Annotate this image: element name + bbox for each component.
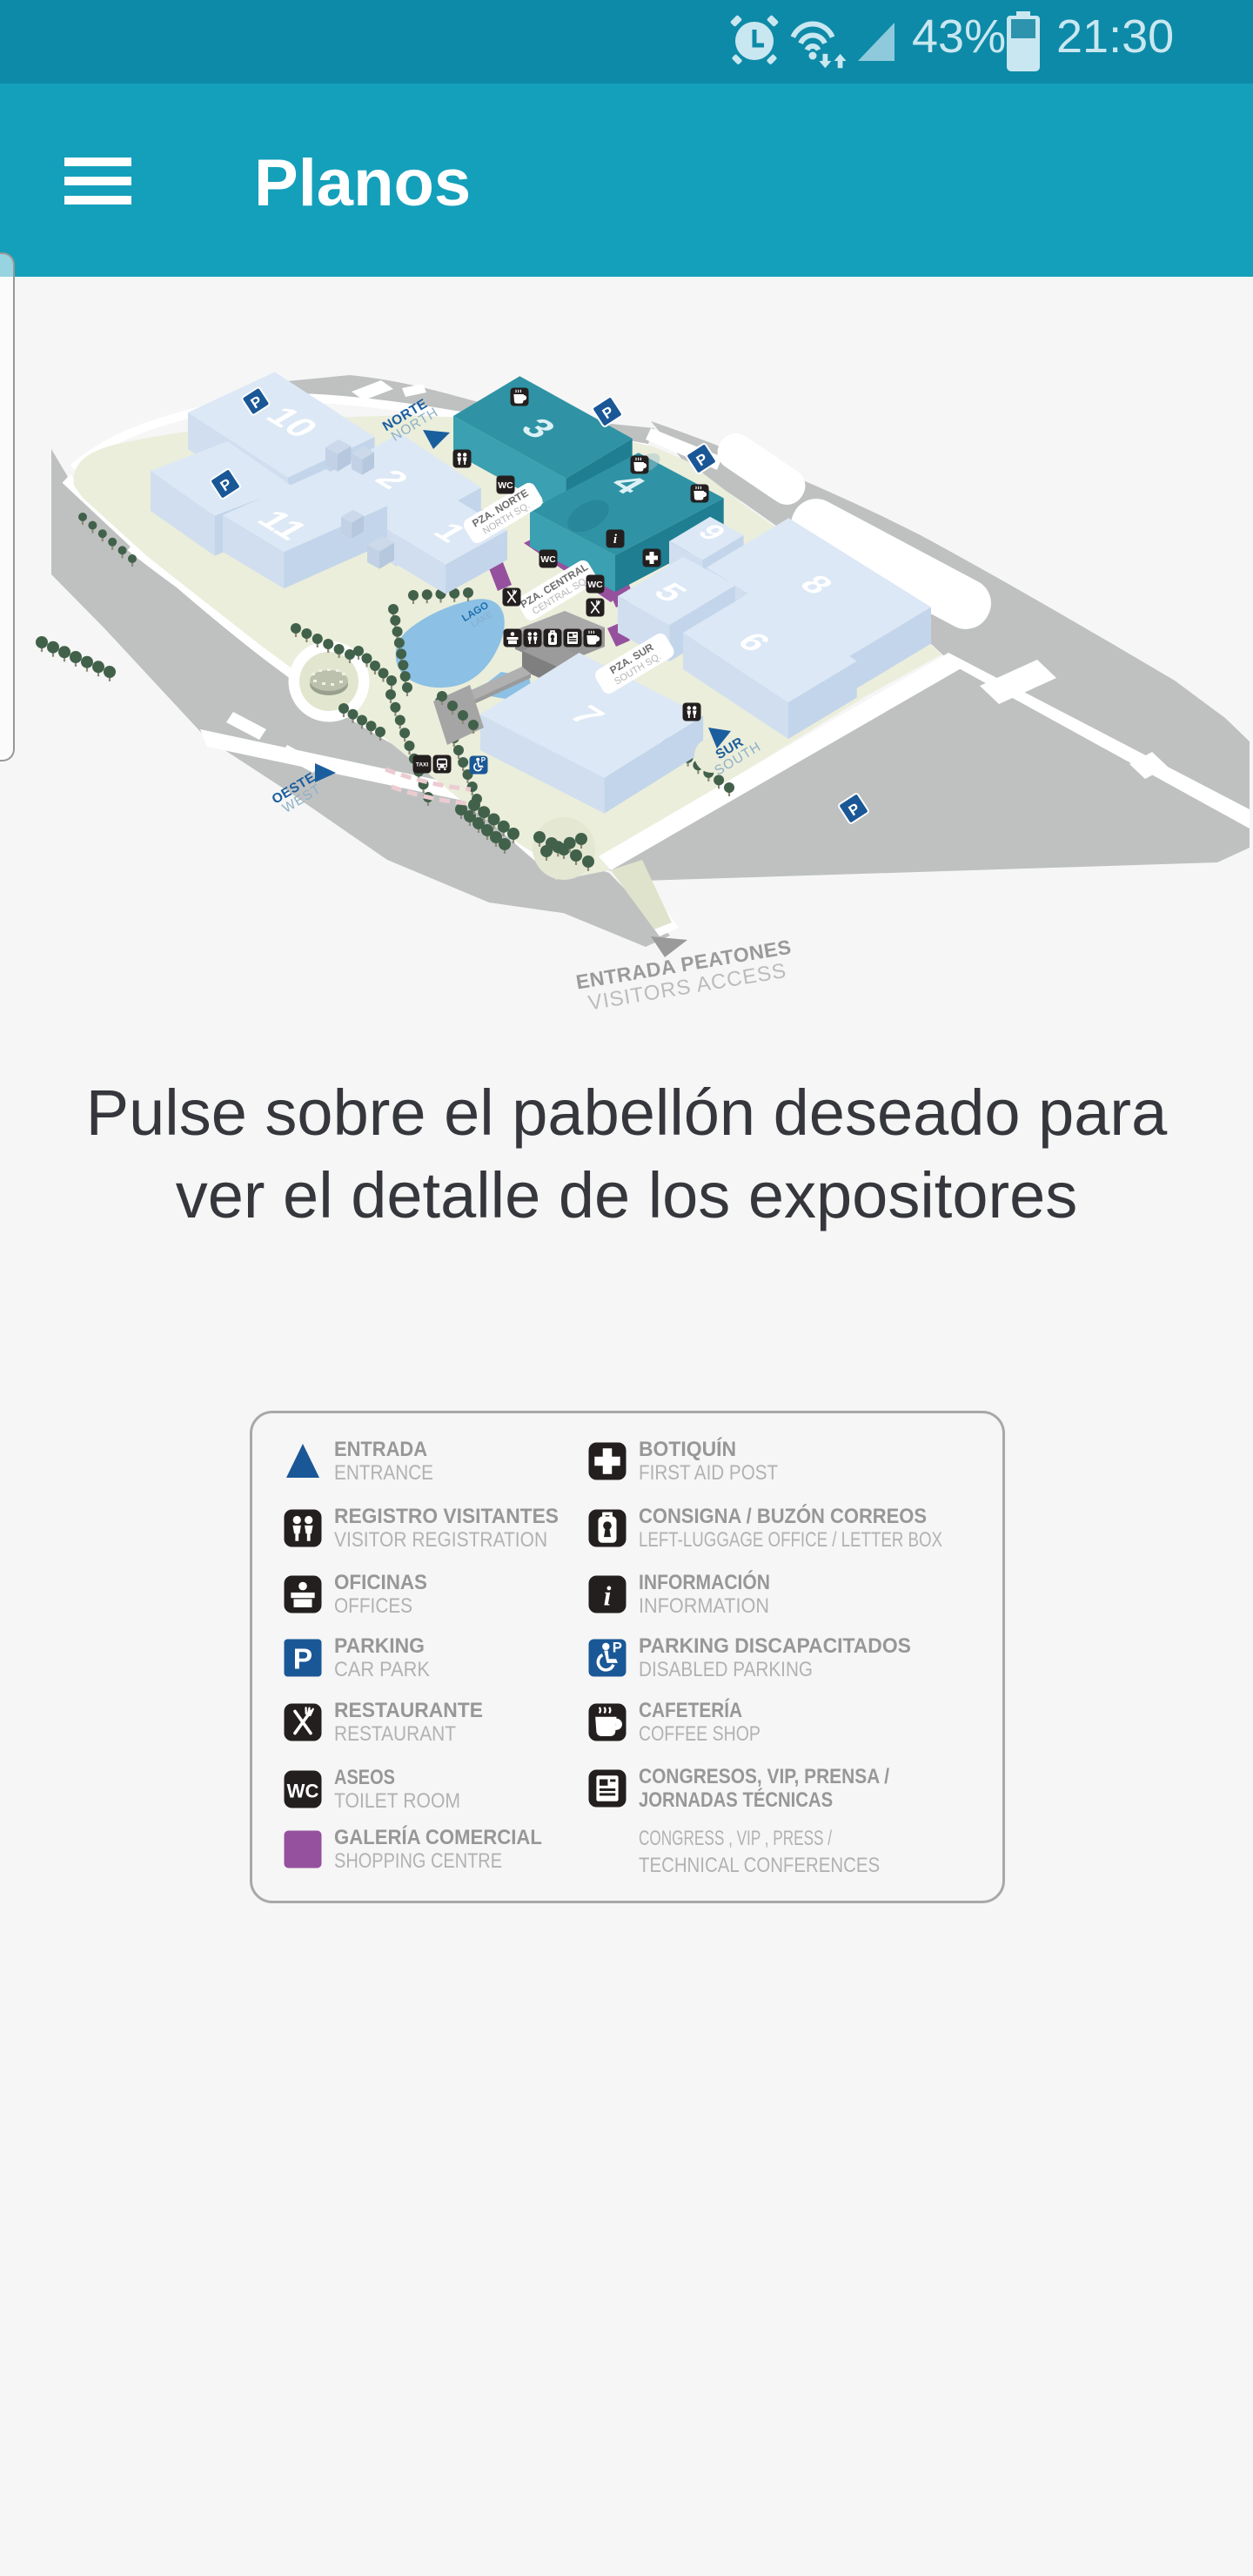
svg-text:21:30: 21:30 <box>1056 10 1174 63</box>
svg-text:43%: 43% <box>912 10 1006 63</box>
svg-text:WC: WC <box>287 1781 319 1802</box>
svg-text:i: i <box>604 1581 612 1612</box>
svg-text:WC: WC <box>540 554 556 565</box>
svg-text:TAXI: TAXI <box>416 762 429 768</box>
svg-text:P: P <box>481 756 486 764</box>
svg-text:WC: WC <box>498 480 513 491</box>
svg-text:P: P <box>293 1644 312 1676</box>
svg-text:P: P <box>613 1640 622 1656</box>
svg-text:WC: WC <box>587 580 603 590</box>
